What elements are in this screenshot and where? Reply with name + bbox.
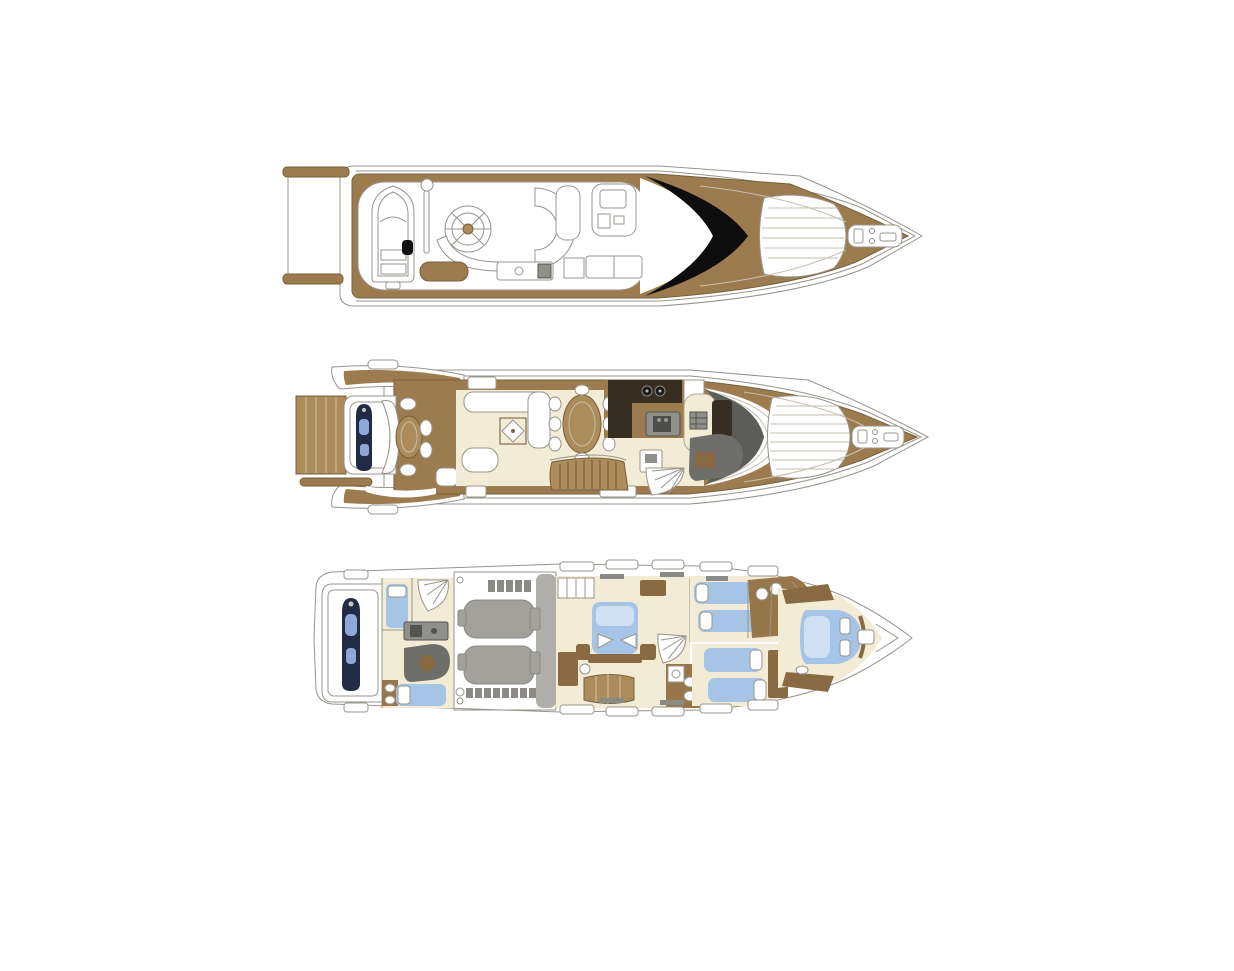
lower-deck	[314, 560, 912, 716]
teak-cabinet	[420, 262, 468, 281]
crew-galley	[404, 622, 448, 640]
flybridge-deck	[283, 166, 922, 306]
hardtop-bar-aft-bottom	[283, 274, 343, 284]
aft-step-bar	[300, 478, 372, 486]
helm-console	[712, 400, 732, 438]
davit-base	[421, 179, 433, 191]
jet-ski	[356, 404, 372, 471]
liferaft-top	[368, 360, 398, 369]
side-step	[436, 468, 458, 486]
canvas	[0, 0, 1234, 971]
crew-bunk	[386, 584, 408, 628]
jet-ski	[342, 598, 360, 691]
hardtop-bar-aft-top	[283, 167, 349, 177]
main-deck	[296, 360, 928, 514]
wet-bar	[497, 262, 553, 280]
side-door-bottom	[466, 486, 486, 497]
foredeck-sunpad	[760, 195, 847, 277]
aft-sunbench-small	[564, 258, 584, 278]
stern-hatch-top	[344, 570, 368, 579]
lounge-end	[556, 186, 580, 240]
davit-arm	[424, 191, 429, 253]
salon-window-top	[468, 377, 496, 389]
swim-platform	[296, 396, 346, 474]
stern-hatch-bottom	[344, 703, 368, 712]
anchor-windlass	[848, 225, 902, 247]
flybridge-table	[445, 206, 491, 252]
tender-boat	[372, 186, 414, 289]
liferaft-bottom	[368, 505, 398, 514]
tender-engine	[402, 240, 413, 255]
stairs-to-flybridge	[550, 455, 628, 490]
helm-instrument	[690, 412, 707, 429]
anchor-windlass	[852, 426, 904, 448]
yacht-deck-plans	[0, 0, 1234, 971]
foredeck-sunpad	[768, 396, 851, 478]
crew-mess	[404, 644, 450, 682]
